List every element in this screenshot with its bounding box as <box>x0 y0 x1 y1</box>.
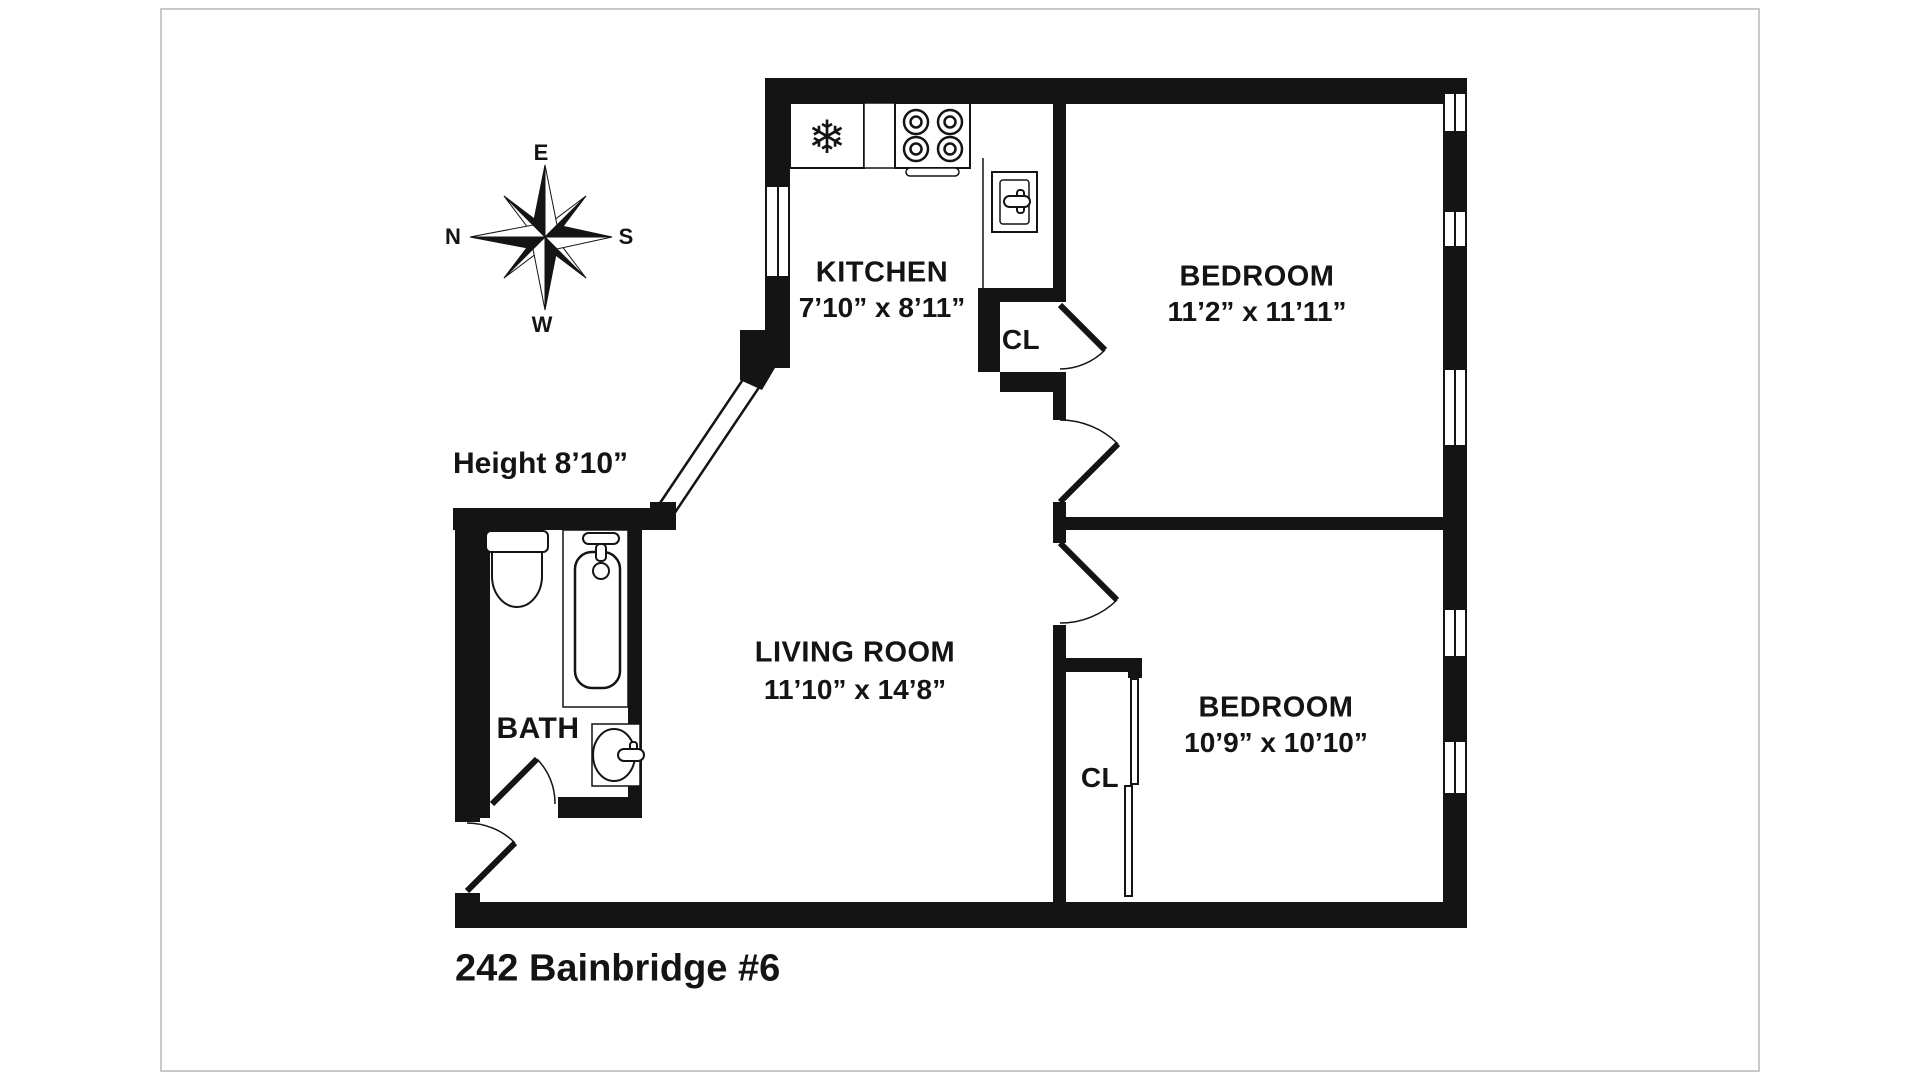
door-bedroom1 <box>1060 420 1118 502</box>
stove-icon <box>895 103 970 176</box>
toilet-icon <box>486 531 548 607</box>
living-room-dimensions: 11’10” x 14’8” <box>764 674 946 706</box>
compass-label-e: E <box>534 140 549 166</box>
door-bath <box>492 759 555 804</box>
bedroom2-dimensions: 10’9” x 10’10” <box>1184 727 1368 759</box>
bath-sink-icon <box>592 724 644 786</box>
kitchen-label: KITCHEN <box>816 257 948 290</box>
kitchen-sink-icon <box>992 172 1037 232</box>
compass-label-w: W <box>532 312 553 338</box>
bedroom1-label: BEDROOM <box>1180 261 1335 294</box>
compass-label-s: S <box>619 224 634 250</box>
compass-label-n: N <box>445 224 461 250</box>
page-title: 242 Bainbridge #6 <box>455 948 780 991</box>
ceiling-height-note: Height 8’10” <box>453 447 628 481</box>
bedroom2-label: BEDROOM <box>1199 692 1354 725</box>
plan-linework <box>0 0 1920 1080</box>
kitchen-dimensions: 7’10” x 8’11” <box>799 292 966 324</box>
bath-label: BATH <box>496 712 579 746</box>
bathtub-icon <box>563 530 628 707</box>
door-closet1 <box>1060 305 1105 369</box>
kitchen-counter <box>864 103 895 168</box>
closet2-label: CL <box>1081 762 1119 794</box>
closet1-label: CL <box>1002 324 1040 356</box>
compass-rose <box>470 165 612 310</box>
snowflake-icon: ❄ <box>808 110 847 164</box>
bedroom1-dimensions: 11’2” x 11’11” <box>1167 296 1346 328</box>
living-room-label: LIVING ROOM <box>755 637 955 670</box>
angled-window <box>658 368 775 514</box>
floor-plan-page: ❄ E N S W KITCHEN 7’10” x 8’11” BEDROOM … <box>0 0 1920 1080</box>
door-bedroom2 <box>1060 543 1117 623</box>
door-entry <box>467 823 515 891</box>
